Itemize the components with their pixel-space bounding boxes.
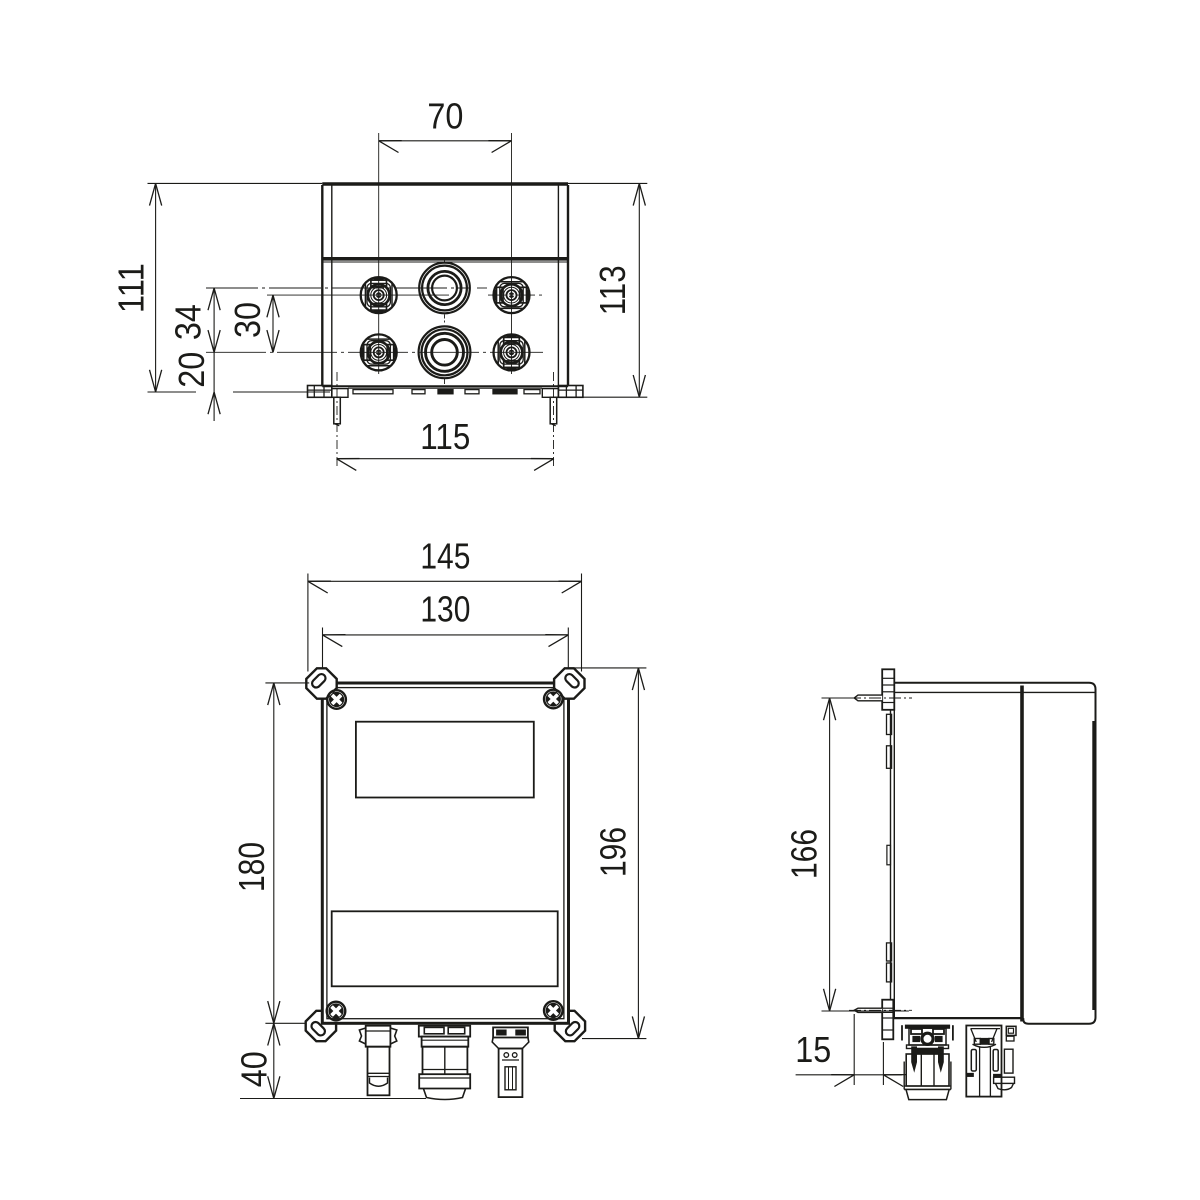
svg-text:130: 130: [420, 589, 470, 630]
svg-text:111: 111: [110, 263, 151, 313]
svg-text:166: 166: [784, 829, 825, 879]
svg-text:15: 15: [795, 1029, 831, 1070]
svg-text:113: 113: [592, 265, 633, 315]
svg-text:40: 40: [234, 1051, 275, 1087]
svg-text:115: 115: [420, 416, 470, 457]
svg-text:20: 20: [171, 352, 212, 388]
svg-text:34: 34: [168, 304, 209, 340]
svg-text:145: 145: [420, 536, 470, 577]
svg-text:30: 30: [227, 302, 268, 338]
svg-text:70: 70: [427, 96, 463, 137]
svg-text:196: 196: [593, 827, 634, 877]
svg-text:180: 180: [231, 842, 272, 892]
